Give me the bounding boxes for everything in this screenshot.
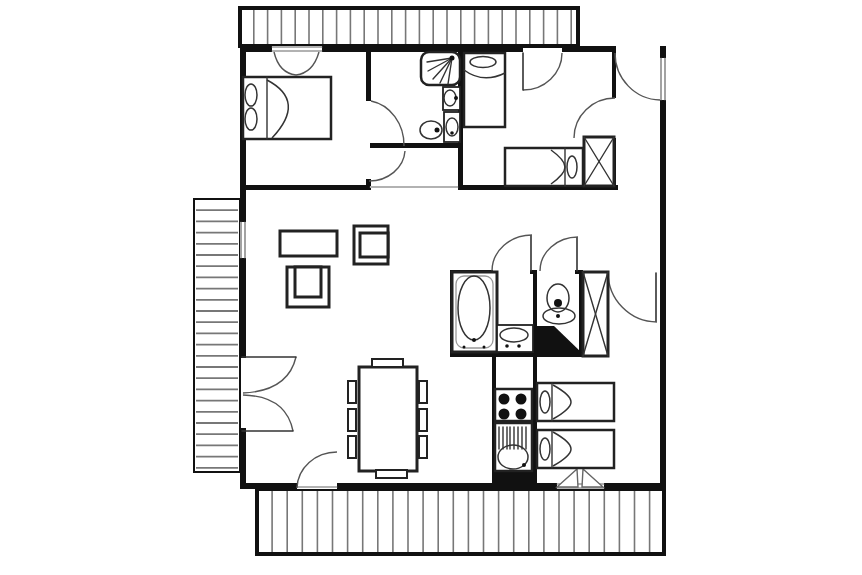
french-door-left-upper-swing-arc xyxy=(243,357,296,393)
wall-segment xyxy=(562,46,616,52)
floor-plan xyxy=(0,0,862,575)
single-bed-bedroom-2 xyxy=(505,148,583,186)
balcony-top xyxy=(240,8,578,46)
dining-set-rect xyxy=(359,367,417,471)
toilet-wc-dot xyxy=(554,299,562,307)
armchair-east-rect xyxy=(360,233,388,257)
dining-set-rect xyxy=(348,436,356,458)
window-bedroom-3-bottom xyxy=(557,469,604,489)
window-bedroom-1-top xyxy=(272,46,322,52)
stove-dot xyxy=(499,394,510,405)
wall-segment xyxy=(660,100,666,489)
armchair-south-rect xyxy=(295,267,321,297)
toilet-bathroom-1-dot xyxy=(450,131,454,135)
sofa-table xyxy=(280,231,337,256)
door-wc xyxy=(540,237,578,271)
door-living-balcony-bottom xyxy=(297,452,337,488)
french-door-left-lower-swing-arc xyxy=(243,395,293,431)
window-corridor-right xyxy=(660,58,666,100)
balcony-top-border xyxy=(240,8,578,46)
balcony-bottom xyxy=(257,489,664,554)
door-bedroom-2-balcony-swing-arc xyxy=(523,53,562,90)
wardrobe-bedroom-2 xyxy=(584,137,614,186)
casement-bedroom-1-right-swing-arc xyxy=(296,52,319,75)
wall-segment xyxy=(240,483,297,489)
french-door-left-upper xyxy=(242,357,296,393)
room-hallway xyxy=(458,190,658,270)
toilet-wc-dot xyxy=(556,314,560,318)
shower-dot xyxy=(450,56,455,61)
toilet-wc xyxy=(543,284,575,324)
flue-duct xyxy=(537,326,582,353)
bathtub-dot xyxy=(483,346,486,349)
door-bathroom-1-swing-arc xyxy=(371,101,404,146)
single-bed-vertical xyxy=(464,53,505,127)
double-bed-rect xyxy=(243,77,331,139)
door-bathroom-2 xyxy=(492,235,532,271)
wall-segment xyxy=(492,471,535,489)
door-bedroom-2-swing-arc xyxy=(574,98,615,138)
stove-dot xyxy=(516,409,527,420)
dining-set-rect xyxy=(419,381,427,403)
toilet-bathroom-1-dot xyxy=(435,128,440,133)
balcony-side-strip-border xyxy=(194,199,240,472)
armchair-south xyxy=(287,267,329,307)
wardrobe-hallway xyxy=(583,272,608,356)
door-entry-swing-arc xyxy=(615,53,660,100)
threshold-balcony-door-bottom-gap xyxy=(297,483,337,489)
stove-dot xyxy=(516,394,527,405)
wall-segment xyxy=(604,483,666,489)
french-door-left-lower xyxy=(242,395,293,431)
stove-dot xyxy=(499,409,510,420)
dining-set xyxy=(348,359,427,478)
threshold-vestibule xyxy=(370,186,458,188)
door-bathroom-2-swing-arc xyxy=(492,235,532,271)
balcony-side-strip xyxy=(194,199,240,472)
wall-segment xyxy=(370,143,462,148)
sink-bathroom-2 xyxy=(497,325,533,352)
dining-set-rect xyxy=(419,409,427,431)
kitchen-sink-dot xyxy=(522,463,526,467)
door-bedroom-1-swing-arc xyxy=(369,151,405,181)
door-bedroom-2 xyxy=(574,98,615,138)
sink-bathroom-1-dot xyxy=(454,96,458,100)
sofa-table-rect xyxy=(280,231,337,256)
floor-plan-svg xyxy=(0,0,862,575)
door-wc-swing-arc xyxy=(540,237,578,271)
bathtub-dot xyxy=(463,346,466,349)
wall-segment xyxy=(458,46,523,52)
bathtub-dot xyxy=(472,338,476,342)
door-living-balcony-bottom-swing-arc xyxy=(297,452,337,488)
door-bedroom-3-swing-arc xyxy=(608,272,657,322)
room-entry-corridor xyxy=(616,53,660,189)
casement-bedroom-1-right xyxy=(296,52,319,75)
sink-bathroom-2-dot xyxy=(505,344,509,348)
shower xyxy=(421,52,460,85)
window-casement-triangle xyxy=(582,469,603,487)
casement-bedroom-1-left xyxy=(274,52,296,75)
single-bed-3b-rect xyxy=(537,430,614,468)
wall-segment xyxy=(240,428,246,488)
sink-bathroom-2-dot xyxy=(517,344,521,348)
dining-set-rect xyxy=(348,381,356,403)
armchair-east xyxy=(354,226,388,264)
sink-bathroom-1 xyxy=(443,87,460,110)
single-bed-3a xyxy=(537,383,614,421)
door-bedroom-1 xyxy=(369,151,405,181)
casement-bedroom-1-left-swing-arc xyxy=(274,52,296,75)
room-vestibule xyxy=(371,148,458,185)
wall-segment xyxy=(366,48,371,101)
dining-set-rect xyxy=(376,470,407,478)
dining-set-rect xyxy=(419,436,427,458)
single-bed-3a-rect xyxy=(537,383,614,421)
double-bed xyxy=(243,77,331,139)
flue-duct-poly xyxy=(537,326,582,353)
toilet-bathroom-1 xyxy=(420,112,460,142)
stove xyxy=(495,389,532,421)
threshold-balcony-door-bottom xyxy=(297,483,337,489)
kitchen-sink xyxy=(495,423,532,471)
wall-segment xyxy=(240,185,370,190)
single-bed-3b xyxy=(537,430,614,468)
door-entry xyxy=(615,53,660,100)
window-casement-triangle xyxy=(557,469,578,487)
bathtub xyxy=(452,272,497,352)
wall-segment xyxy=(660,46,666,58)
door-bedroom-2-balcony xyxy=(523,53,562,90)
dining-set-rect xyxy=(348,409,356,431)
dining-set-rect xyxy=(372,359,403,367)
door-bathroom-1 xyxy=(371,101,404,146)
single-bed-bedroom-2-rect xyxy=(505,148,583,186)
door-bedroom-3 xyxy=(608,272,657,322)
wall-segment xyxy=(240,258,246,358)
window-living-left xyxy=(240,222,246,258)
